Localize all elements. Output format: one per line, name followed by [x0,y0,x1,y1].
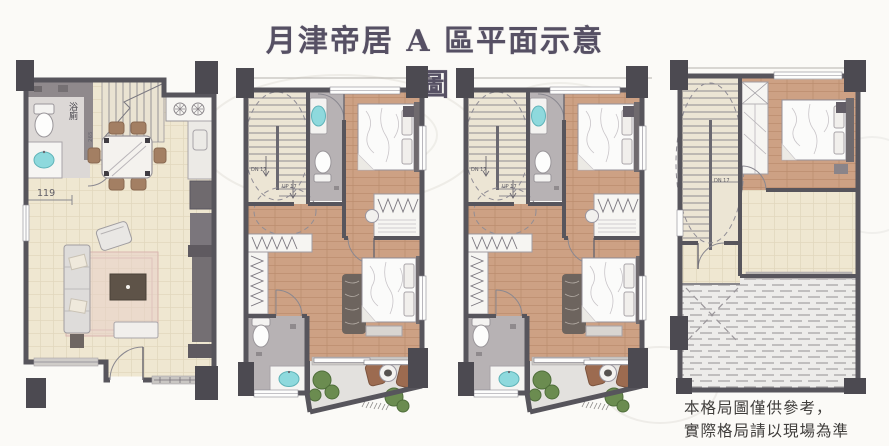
sofa [64,245,90,333]
floor-plan-4: DN 17 [670,60,868,405]
disclaimer-line-2: 實際格局請以現場為準 [684,420,849,443]
bed-bench [586,326,622,336]
sink-icon [28,142,62,178]
bed [782,98,854,162]
side-stool [70,334,84,348]
roof-terrace [682,276,858,390]
tall-cabinet [190,213,212,245]
toilet-icon [314,151,331,182]
coffee-table [110,274,146,300]
nightstand [834,164,848,174]
desk-chair [366,210,379,223]
floor-plan-2: DN 17 UP 17 [236,66,434,426]
wardrobe-hangers [366,194,421,238]
grate-strip [582,401,609,410]
stove-icon [166,97,212,121]
sliding-door [532,357,640,365]
sink-icon [490,366,528,392]
bathroom-label: 浴廁 [67,102,78,121]
bed [578,102,642,172]
floor-plan-flyer: 月津帝居 A 區平面示意圖 [0,0,889,446]
stair-label-up: UP 17 [282,184,297,190]
desk-chair [586,210,599,223]
sink-icon [270,366,308,392]
hall-floor [740,190,858,276]
sink-icon [310,98,327,134]
bed [362,256,424,324]
wardrobe-hangers [586,194,641,238]
refrigerator [190,181,212,209]
stair-label-dn: DN 17 [714,178,730,184]
wardrobe [742,82,768,174]
toilet-icon [472,318,490,347]
floor-plan-1: 浴廁 265 119 [14,60,226,410]
dining-table [102,136,152,178]
outdoor-table [380,365,397,382]
toilet-icon [34,104,54,137]
bed-bench [366,326,402,336]
sliding-door [312,357,420,365]
bench [114,322,158,338]
stair-label-up: UP 17 [502,184,517,190]
disclaimer-line-1: 本格局圖僅供參考， [684,397,849,420]
stair-label-dn: DN 17 [251,167,267,173]
sink-icon [530,98,547,134]
outdoor-table [600,365,617,382]
disclaimer-note: 本格局圖僅供參考， 實際格局請以現場為準 [684,397,849,443]
toilet-icon [252,318,270,347]
wall-dimension: 265 [88,131,94,142]
toilet-icon [534,151,551,182]
svg-text:119: 119 [37,188,55,199]
bed [582,256,644,324]
grate-strip [362,401,389,410]
stair-label-dn: DN 17 [471,167,487,173]
floor-plan-3: DN 17 UP 17 [456,66,654,426]
bed [358,102,422,172]
